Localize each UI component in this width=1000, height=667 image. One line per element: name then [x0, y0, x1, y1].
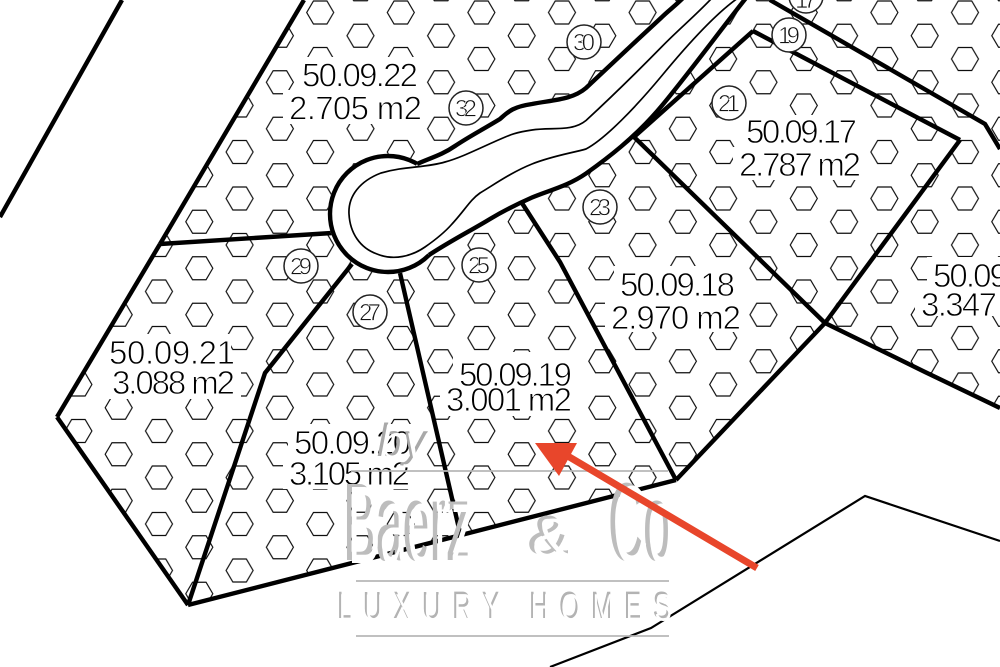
- svg-text:50.09.17: 50.09.17: [746, 113, 857, 150]
- svg-text:Co: Co: [613, 464, 675, 587]
- svg-text:25: 25: [468, 253, 490, 280]
- svg-text:2.787 m2: 2.787 m2: [739, 146, 861, 183]
- svg-text:Baerz: Baerz: [348, 464, 475, 587]
- svg-text:27: 27: [359, 300, 381, 327]
- svg-text:3.088 m2: 3.088 m2: [112, 364, 235, 401]
- svg-text:2.705 m2: 2.705 m2: [289, 90, 422, 127]
- svg-text:3.347 m2: 3.347 m2: [921, 286, 1000, 323]
- svg-text:23: 23: [589, 195, 611, 222]
- svg-text:17: 17: [795, 0, 817, 14]
- svg-text:LUXURY HOMES: LUXURY HOMES: [339, 587, 683, 629]
- svg-text:50.09.18: 50.09.18: [620, 266, 735, 303]
- svg-text:3.001 m2: 3.001 m2: [446, 381, 572, 418]
- svg-text:2.970 m2: 2.970 m2: [611, 299, 741, 336]
- svg-text:30: 30: [573, 30, 595, 57]
- svg-text:29: 29: [290, 254, 312, 281]
- svg-text:&: &: [532, 506, 574, 569]
- svg-text:19: 19: [778, 23, 800, 50]
- svg-text:21: 21: [718, 91, 740, 118]
- svg-text:32: 32: [455, 96, 477, 123]
- svg-text:50.09.22: 50.09.22: [302, 57, 418, 94]
